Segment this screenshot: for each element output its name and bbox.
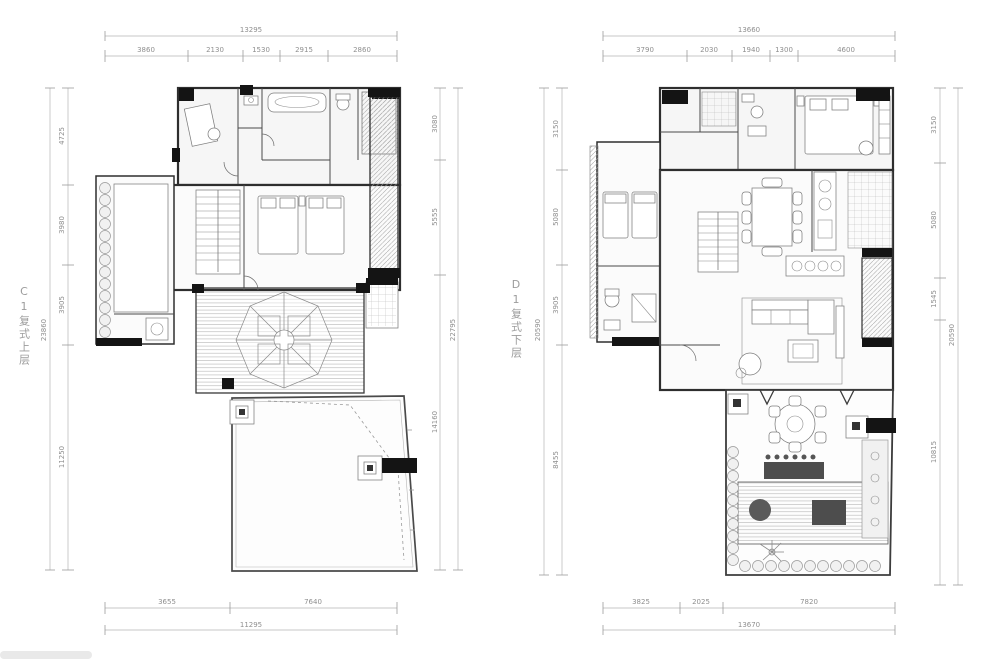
dim-total-right: 22795: [449, 319, 457, 341]
washer: [146, 318, 168, 340]
armchair: [859, 141, 873, 155]
dim-seg: 3655: [158, 598, 176, 606]
dim-total-left: 20590: [534, 319, 542, 341]
dim-seg: 3150: [552, 120, 560, 138]
bed: [258, 196, 298, 254]
dim-total-right: 20590: [948, 324, 956, 346]
bed: [306, 196, 344, 254]
plan-right: D1复式下层 13660 3790 2030 1940 1300 4600 38…: [510, 26, 964, 635]
upper-rooms: [178, 85, 400, 185]
lounge-chair: [739, 353, 761, 375]
wardrobe: [879, 96, 890, 154]
plan-right-label: D1复式下层: [510, 278, 523, 360]
dim-seg: 8455: [552, 451, 560, 469]
side-balcony: [862, 248, 892, 347]
plan-right-dims-left: 3150 5080 3905 8455 20590: [534, 88, 568, 575]
dim-seg: 2025: [692, 598, 710, 606]
flower-bed: [862, 440, 888, 538]
dim-seg: 3790: [636, 46, 654, 54]
dim-total-bottom: 11295: [240, 621, 262, 629]
plan-right-dims-top: 13660 3790 2030 1940 1300 4600: [603, 26, 895, 62]
scan-artifact-bar: [0, 651, 92, 659]
plan-left: C1复式上层 13295 3860 2130 1530 2915 2860 36…: [18, 26, 464, 635]
column-marker: [728, 394, 748, 414]
dim-seg: 1940: [742, 46, 760, 54]
plan-left-dims-left: 4725 3980 3905 11250 23860: [40, 88, 74, 570]
plan-right-dims-right: 3150 5080 1545 10815 20590: [930, 88, 963, 585]
dim-seg: 2915: [295, 46, 313, 54]
storage-room: [114, 184, 168, 312]
dim-seg: 3860: [137, 46, 155, 54]
dim-seg: 14160: [431, 411, 439, 433]
floorplan-image: C1复式上层 13295 3860 2130 1530 2915 2860 36…: [0, 0, 1000, 666]
dim-seg: 11250: [58, 446, 66, 468]
dim-seg: 7640: [304, 598, 322, 606]
toilet: [336, 94, 350, 110]
dim-seg: 3980: [58, 216, 66, 234]
side-balcony: [366, 88, 400, 328]
fire-pit: [749, 499, 771, 521]
stairs: [698, 212, 738, 272]
planter-strip: [590, 146, 598, 338]
sofa-back: [752, 300, 808, 310]
top-rooms: [660, 88, 893, 170]
tv-console: [836, 306, 844, 358]
dim-seg: 5555: [431, 208, 439, 226]
sofa-seat: [752, 310, 808, 324]
dim-seg: 4600: [837, 46, 855, 54]
dim-total-top: 13660: [738, 26, 760, 34]
dim-seg: 3080: [431, 115, 439, 133]
gazebo-octagon: [236, 292, 332, 388]
plan-left-dims-top: 13295 3860 2130 1530 2915 2860: [105, 26, 397, 62]
pantry-shelves: [848, 172, 892, 248]
left-wing: [96, 176, 174, 346]
dim-seg: 3905: [58, 296, 66, 314]
dim-total-bottom: 13670: [738, 621, 760, 629]
stairs: [196, 190, 240, 274]
plan-left-dims-bottom: 3655 7640 11295: [105, 598, 397, 635]
plan-left-label: C1复式上层: [18, 285, 31, 367]
dim-seg: 4725: [58, 127, 66, 145]
dim-seg: 5080: [930, 211, 938, 229]
daybed: [812, 500, 846, 525]
dim-seg: 1300: [775, 46, 793, 54]
dim-seg: 3825: [632, 598, 650, 606]
dim-seg: 2860: [353, 46, 371, 54]
column-marker: [230, 400, 254, 424]
dim-seg: 2030: [700, 46, 718, 54]
dim-seg: 1545: [930, 290, 938, 308]
sink: [244, 96, 258, 105]
dim-seg: 2130: [206, 46, 224, 54]
middle-zone: [660, 170, 893, 390]
nightstand: [299, 196, 305, 206]
coffee-table: [788, 340, 818, 362]
plan-left-dims-right: 3080 5555 14160 22795: [431, 88, 463, 570]
chaise: [808, 300, 834, 334]
closet: [702, 92, 736, 126]
dim-seg: 5080: [552, 208, 560, 226]
dim-seg: 3150: [930, 116, 938, 134]
dim-seg: 10815: [930, 441, 938, 463]
bathtub: [268, 93, 326, 112]
dim-total-left: 23860: [40, 319, 48, 341]
master-bed: [797, 96, 881, 155]
dim-seg: 3905: [552, 296, 560, 314]
dim-seg: 1530: [252, 46, 270, 54]
dim-total-top: 13295: [240, 26, 262, 34]
outdoor-terrace: [726, 390, 896, 575]
terrace-deck: [192, 283, 370, 393]
dim-seg: 7820: [800, 598, 818, 606]
open-terrace: [230, 396, 417, 571]
plan-right-dims-bottom: 3825 2025 7820 13670: [603, 598, 895, 635]
